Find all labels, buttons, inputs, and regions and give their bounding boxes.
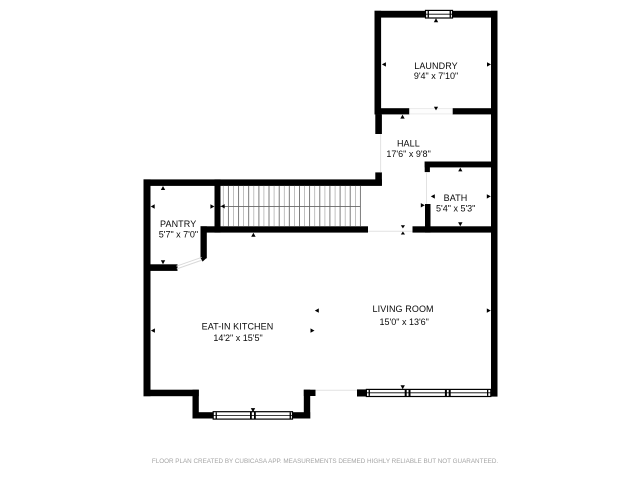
svg-text:15'0" x 13'6": 15'0" x 13'6" (380, 317, 429, 327)
svg-text:PANTRY: PANTRY (160, 219, 196, 229)
svg-text:FLOOR PLAN CREATED BY CUBICASA: FLOOR PLAN CREATED BY CUBICASA APP. MEAS… (152, 458, 499, 465)
svg-text:17'6" x 9'8": 17'6" x 9'8" (386, 149, 430, 159)
svg-text:LIVING ROOM: LIVING ROOM (373, 304, 434, 314)
svg-text:14'2" x 15'5": 14'2" x 15'5" (213, 333, 262, 343)
svg-text:5'7" x 7'0": 5'7" x 7'0" (159, 229, 198, 239)
svg-text:EAT-IN KITCHEN: EAT-IN KITCHEN (202, 322, 274, 332)
svg-text:BATH: BATH (444, 193, 468, 203)
svg-text:9'4" x 7'10": 9'4" x 7'10" (414, 71, 458, 81)
svg-text:5'4" x 5'3": 5'4" x 5'3" (436, 204, 475, 214)
svg-text:HALL: HALL (397, 139, 420, 149)
svg-text:LAUNDRY: LAUNDRY (414, 61, 458, 71)
